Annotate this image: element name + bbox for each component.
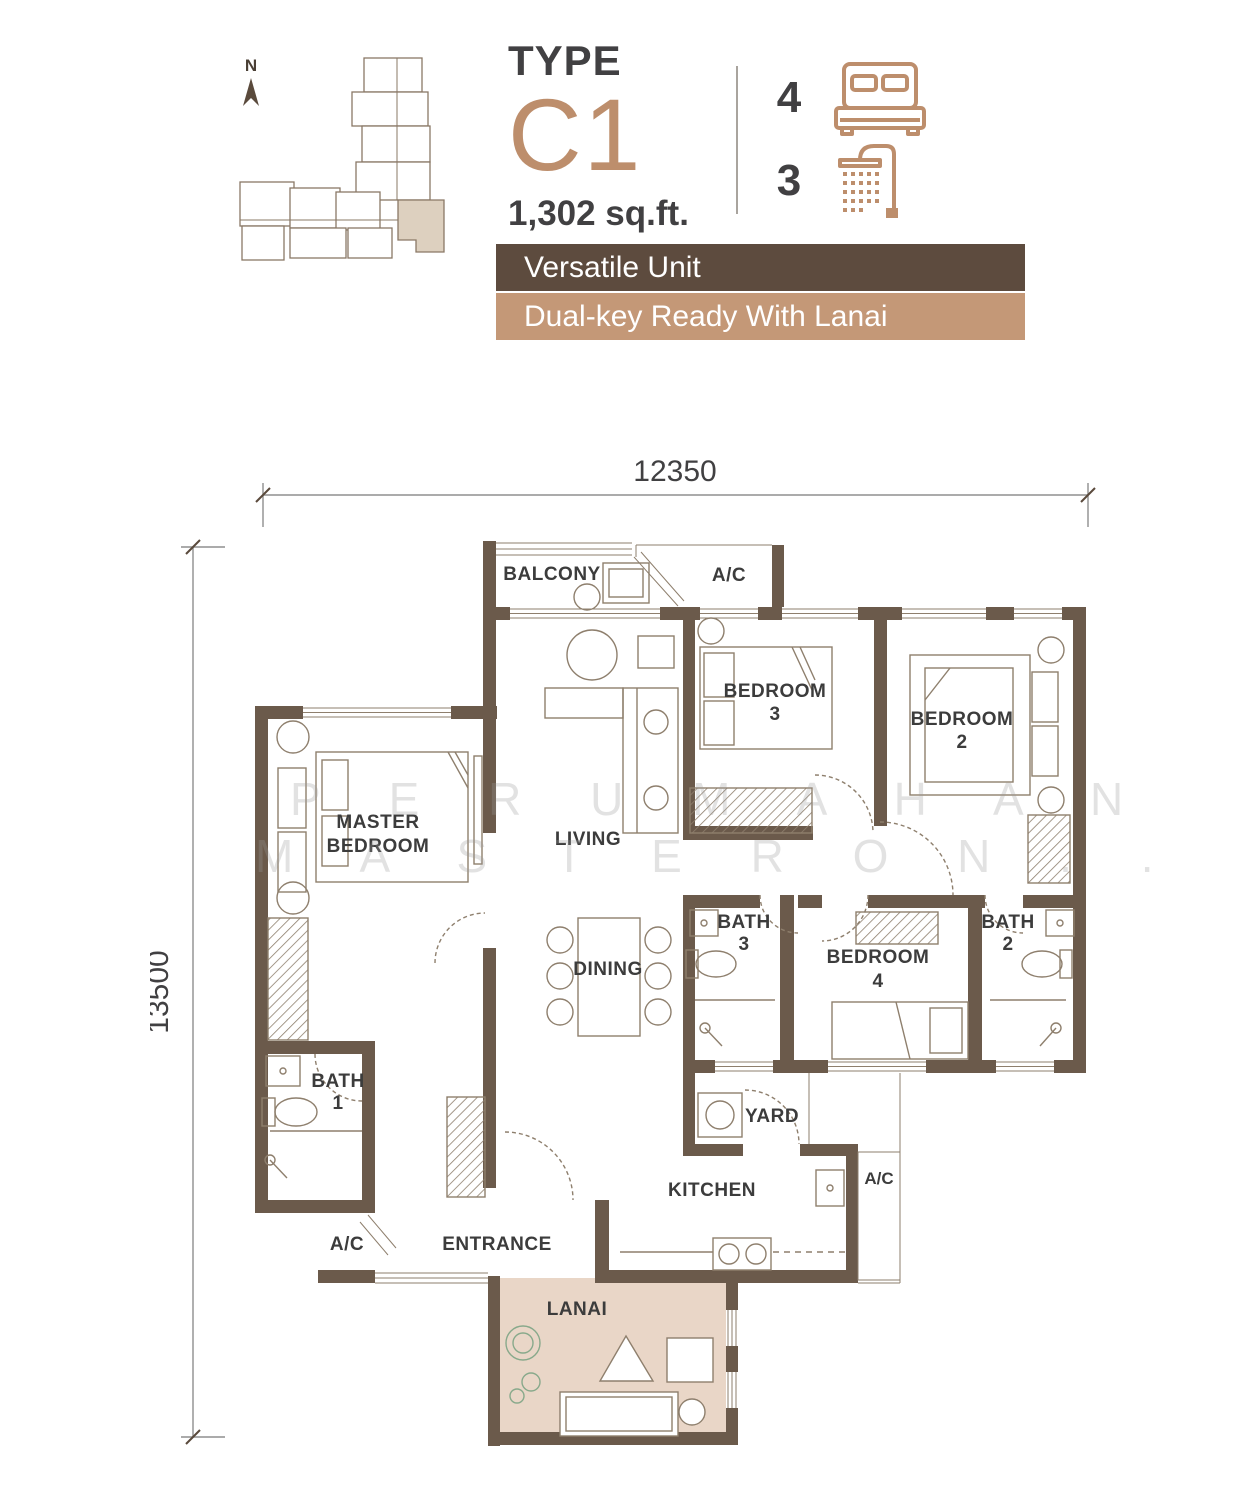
room-label-ac-top: A/C: [712, 565, 746, 586]
unit-area: 1,302 sq.ft.: [508, 196, 689, 231]
watermark-line2: M A S T E R O N . . .: [255, 830, 1150, 882]
room-label-bath1: BATH: [311, 1071, 364, 1092]
banner-versatile-unit: Versatile Unit: [496, 244, 1025, 291]
room-label-bedroom2: BEDROOM: [911, 709, 1014, 730]
room-label-bedroom3: BEDROOM: [724, 681, 827, 702]
room-label-bedroom2-num: 2: [956, 732, 967, 753]
room-label-bath2-num: 2: [1002, 934, 1013, 955]
banner-primary-text: Versatile Unit: [524, 251, 701, 284]
bathroom-stat: 3: [772, 138, 908, 224]
floor-plan: 12350 13500 BALCONY A/C MASTER BEDROOM L…: [150, 430, 1150, 1500]
bed-icon: [830, 60, 930, 136]
banner-secondary-text: Dual-key Ready With Lanai: [524, 300, 888, 333]
key-plan: [232, 50, 482, 285]
shower-icon: [830, 138, 908, 224]
room-label-entrance: ENTRANCE: [442, 1234, 552, 1255]
room-label-bedroom4: BEDROOM: [827, 947, 930, 968]
room-label-bath1-num: 1: [332, 1093, 343, 1114]
room-label-bath3-num: 3: [738, 934, 749, 955]
room-label-lanai: LANAI: [547, 1299, 608, 1320]
dimension-height-label: 13500: [150, 950, 175, 1033]
room-label-bedroom3-num: 3: [769, 704, 780, 725]
room-label-bath3: BATH: [717, 912, 770, 933]
room-label-kitchen: KITCHEN: [668, 1180, 756, 1201]
room-label-bedroom4-num: 4: [872, 971, 883, 992]
bedroom-stat: 4: [772, 60, 930, 136]
bedroom-count: 4: [772, 73, 806, 123]
header-divider: [736, 66, 738, 214]
room-label-bath2: BATH: [981, 912, 1034, 933]
unit-type-block: TYPE C1 1,302 sq.ft.: [508, 40, 689, 231]
watermark-line1: P E R U M A H A N: [290, 773, 1150, 825]
key-plan-unit-highlight: [398, 200, 444, 252]
room-label-dining: DINING: [573, 959, 643, 980]
banner-dual-key: Dual-key Ready With Lanai: [496, 293, 1025, 340]
room-label-yard: YARD: [745, 1106, 799, 1127]
type-label: TYPE: [508, 40, 689, 82]
unit-code: C1: [508, 84, 689, 186]
room-label-balcony: BALCONY: [503, 564, 600, 585]
room-label-ac-left: A/C: [330, 1234, 364, 1255]
dimension-width-label: 12350: [633, 455, 716, 488]
room-label-ac-right: A/C: [864, 1169, 893, 1188]
bathroom-count: 3: [772, 156, 806, 206]
